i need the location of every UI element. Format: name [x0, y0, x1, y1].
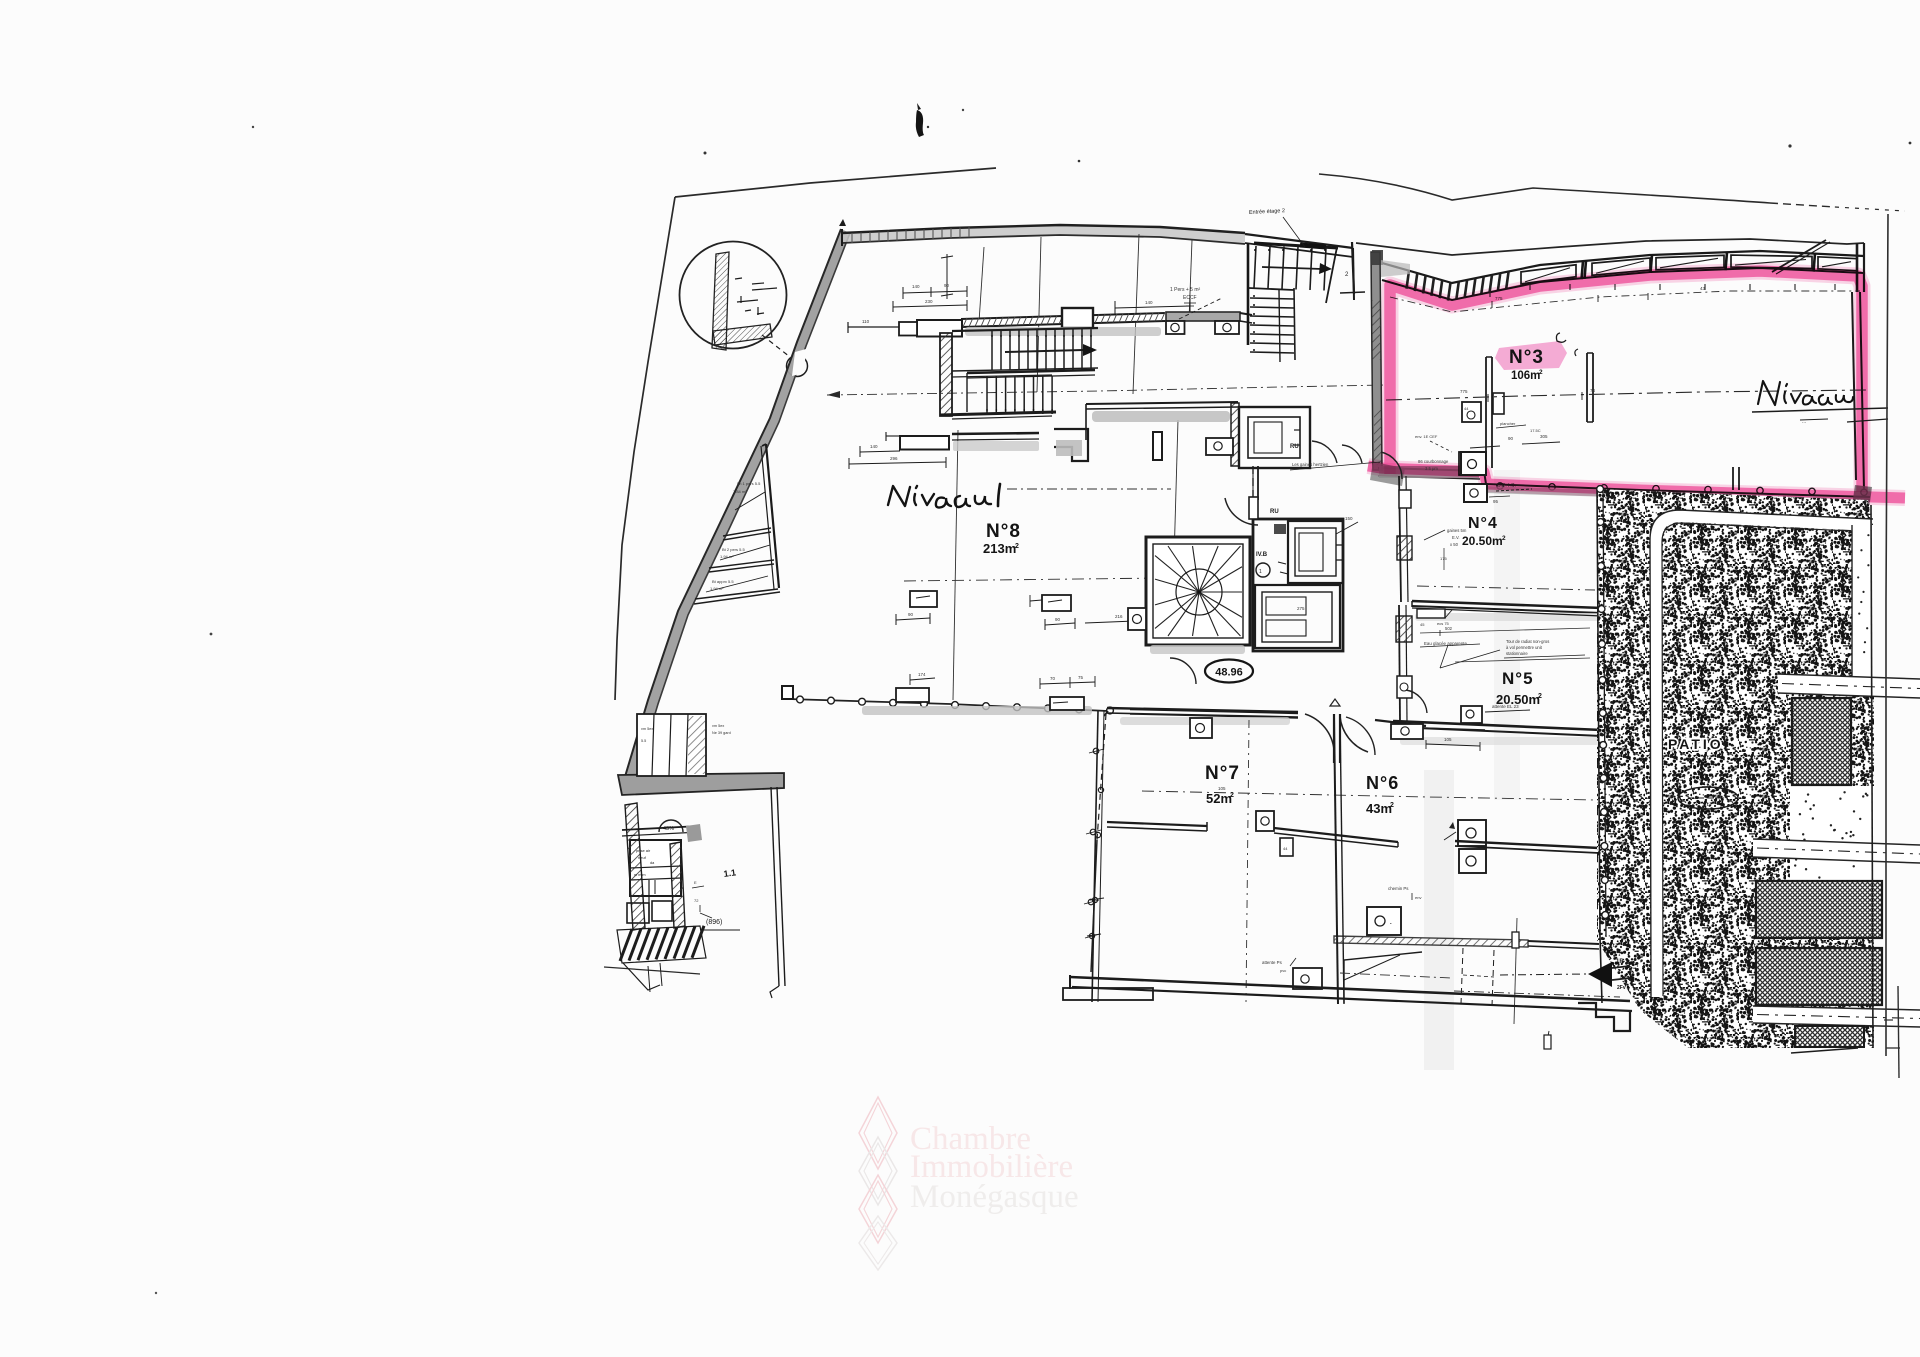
svg-text:105: 105 [1218, 786, 1226, 791]
svg-text:2: 2 [1539, 369, 1543, 376]
svg-text:775: 775 [1460, 389, 1468, 394]
svg-text:N°7: N°7 [1205, 763, 1240, 784]
svg-text:attente Ps: attente Ps [1262, 960, 1283, 965]
svg-text:pvc: pvc [1280, 968, 1286, 973]
svg-text:95: 95 [1493, 499, 1499, 504]
svg-text:env: env [1415, 895, 1421, 900]
svg-text:140: 140 [870, 444, 878, 449]
svg-text:(896): (896) [706, 919, 722, 926]
svg-text:...: ... [1802, 419, 1806, 425]
svg-text:vm 5ex: vm 5ex [712, 724, 724, 728]
svg-text:90: 90 [1055, 617, 1061, 622]
svg-text:1: 1 [1259, 569, 1262, 575]
svg-text:3.5 μm: 3.5 μm [1425, 466, 1438, 471]
svg-text:2Fv: 2Fv [1617, 985, 1626, 991]
svg-text:74: 74 [1590, 388, 1596, 393]
svg-text:E: E [694, 880, 697, 885]
svg-text:5.5: 5.5 [641, 739, 646, 743]
svg-text:RU: RU [1290, 444, 1299, 450]
svg-text:86 courbonnage: 86 courbonnage [1418, 459, 1449, 464]
svg-text:43m: 43m [1366, 801, 1392, 816]
svg-text:7.84 m²: 7.84 m² [733, 489, 747, 494]
svg-text:à vol permettre unit: à vol permettre unit [1506, 645, 1543, 650]
svg-text:140: 140 [1145, 300, 1153, 305]
svg-text:chemin Ps: chemin Ps [1388, 886, 1409, 891]
svg-text:2: 2 [1538, 693, 1542, 700]
svg-text:1R: 1R [1616, 959, 1624, 965]
svg-text:90: 90 [1508, 436, 1514, 441]
svg-text:5h 1 pers 5.5: 5h 1 pers 5.5 [737, 481, 761, 486]
svg-text:x 50: x 50 [1450, 542, 1459, 547]
svg-text:52m: 52m [1206, 791, 1232, 806]
svg-text:17.5C: 17.5C [1530, 428, 1541, 433]
svg-text:275: 275 [1297, 606, 1305, 611]
svg-text:vm 5ex: vm 5ex [641, 727, 653, 731]
svg-text:216: 216 [1115, 614, 1123, 619]
svg-text:1 Pers + 5 m²: 1 Pers + 5 m² [1170, 287, 1200, 293]
svg-text:ecs 75: ecs 75 [1437, 621, 1450, 626]
svg-text:N°3: N°3 [1509, 347, 1544, 368]
svg-text:Ne 39 gard: Ne 39 gard [712, 731, 731, 735]
svg-text:296: 296 [890, 456, 898, 461]
svg-text:Monégasque: Monégasque [910, 1179, 1079, 1215]
svg-text:213m: 213m [983, 541, 1016, 556]
svg-text:110: 110 [862, 319, 870, 324]
svg-text:N°5: N°5 [1502, 669, 1534, 688]
svg-text:44: 44 [1464, 406, 1469, 411]
svg-text:70: 70 [1050, 676, 1056, 681]
svg-text:2: 2 [1015, 543, 1019, 550]
svg-text:2: 2 [1502, 535, 1506, 542]
svg-text:20.50m: 20.50m [1462, 534, 1503, 548]
svg-text:230: 230 [925, 299, 933, 304]
svg-text:502: 502 [1445, 626, 1453, 631]
svg-text:Tour de radiat non-gros: Tour de radiat non-gros [1506, 639, 1549, 644]
svg-text:N°8: N°8 [986, 521, 1021, 542]
svg-text:105: 105 [1444, 737, 1452, 742]
svg-text:75: 75 [1078, 675, 1084, 680]
svg-text:44: 44 [1283, 846, 1288, 851]
svg-text:2: 2 [1230, 792, 1234, 799]
svg-text:45: 45 [1420, 622, 1425, 627]
svg-text:plancher: plancher [1500, 421, 1516, 426]
svg-text:N°4: N°4 [1468, 515, 1498, 532]
svg-text:1.94 m²: 1.94 m² [720, 554, 734, 559]
svg-text:env. 1E CEF: env. 1E CEF [1415, 434, 1438, 439]
svg-text:2: 2 [1390, 802, 1394, 809]
svg-text:ECCF: ECCF [1183, 295, 1197, 301]
svg-text:IV.B: IV.B [1256, 552, 1268, 558]
svg-text:1.94 m²: 1.94 m² [710, 586, 724, 591]
svg-text:48.96: 48.96 [1215, 667, 1243, 679]
svg-text:E.V.: E.V. [1452, 535, 1460, 540]
svg-text:stationnaire: stationnaire [1506, 651, 1528, 656]
svg-text:PATIO: PATIO [1668, 736, 1724, 752]
svg-text:RU: RU [1270, 509, 1279, 515]
svg-text:175: 175 [1440, 556, 1447, 561]
svg-text:72: 72 [694, 898, 699, 903]
svg-text:305: 305 [1540, 434, 1548, 439]
svg-text:1.1: 1.1 [723, 867, 737, 879]
svg-text:N°6: N°6 [1366, 773, 1399, 793]
svg-text:106m: 106m [1511, 370, 1540, 382]
svg-text:Bt apprx 5.5: Bt apprx 5.5 [712, 579, 734, 584]
svg-text:140: 140 [912, 284, 920, 289]
svg-text:attente EL 23: attente EL 23 [1492, 704, 1519, 709]
svg-text:C.E. I.C.: C.E. I.C. [1497, 483, 1516, 489]
svg-text:Les gaines hertzien: Les gaines hertzien [1292, 462, 1329, 467]
svg-text:gaines 5m: gaines 5m [1447, 528, 1467, 533]
svg-text:Bt 2 pers 5.5: Bt 2 pers 5.5 [722, 547, 745, 552]
svg-text:43: 43 [1700, 286, 1706, 291]
svg-text:90: 90 [908, 612, 914, 617]
svg-text:174: 174 [918, 672, 926, 677]
svg-text:150: 150 [1345, 516, 1353, 521]
